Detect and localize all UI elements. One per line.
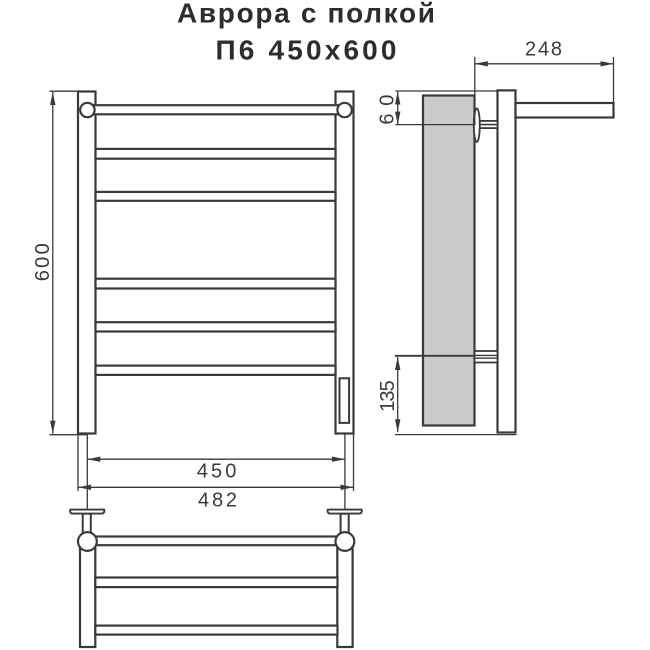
svg-text:Аврора с полкой: Аврора с полкой (177, 0, 435, 29)
svg-text:П6 450x600: П6 450x600 (216, 35, 397, 66)
svg-text:135: 135 (377, 380, 399, 412)
svg-text:450: 450 (197, 461, 237, 483)
svg-text:482: 482 (198, 490, 237, 512)
svg-text:600: 600 (32, 243, 54, 281)
svg-text:248: 248 (525, 39, 562, 61)
